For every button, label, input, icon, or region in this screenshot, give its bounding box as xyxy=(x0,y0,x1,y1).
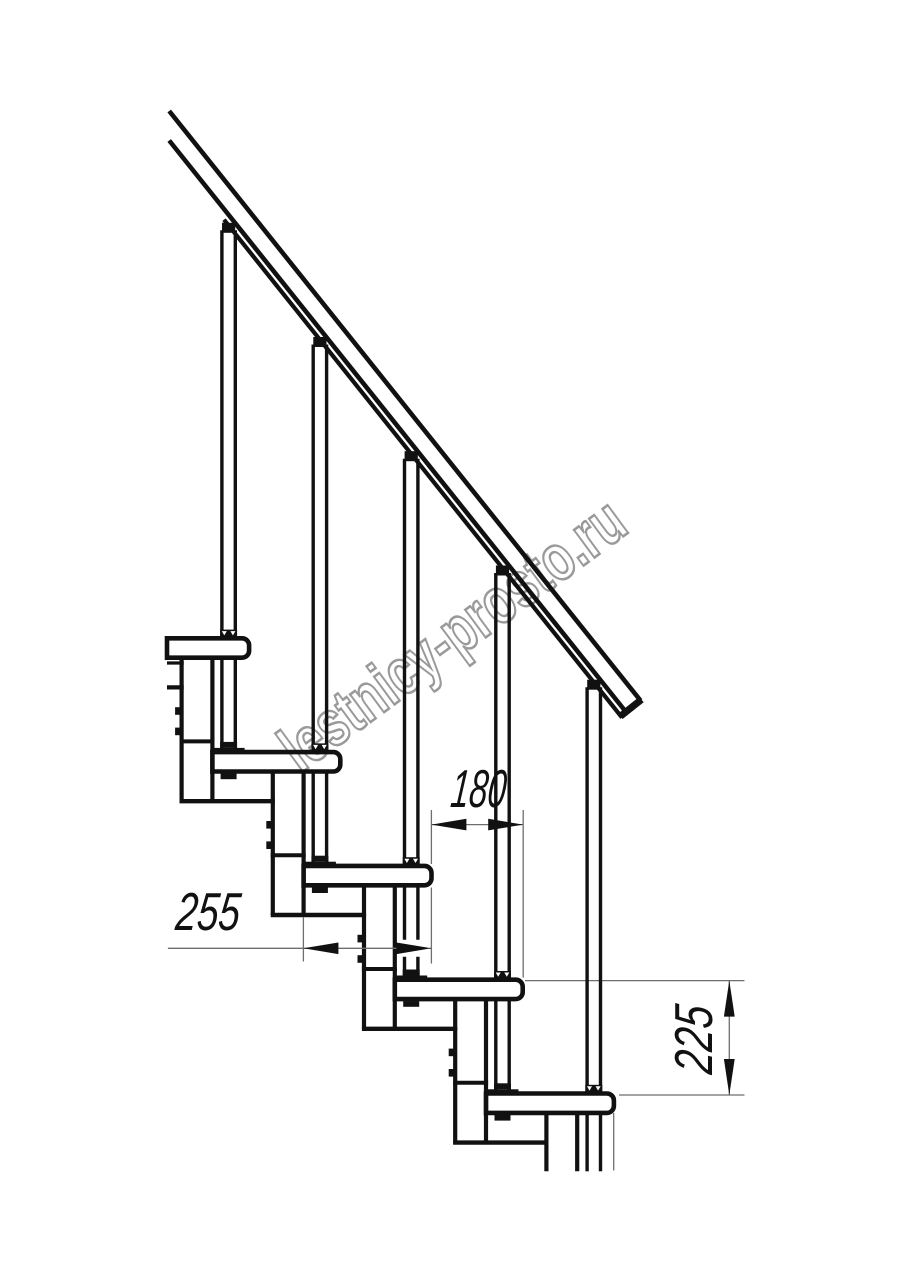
svg-text:255: 255 xyxy=(173,882,244,942)
svg-text:180: 180 xyxy=(448,759,509,819)
svg-text:225: 225 xyxy=(664,1002,724,1077)
